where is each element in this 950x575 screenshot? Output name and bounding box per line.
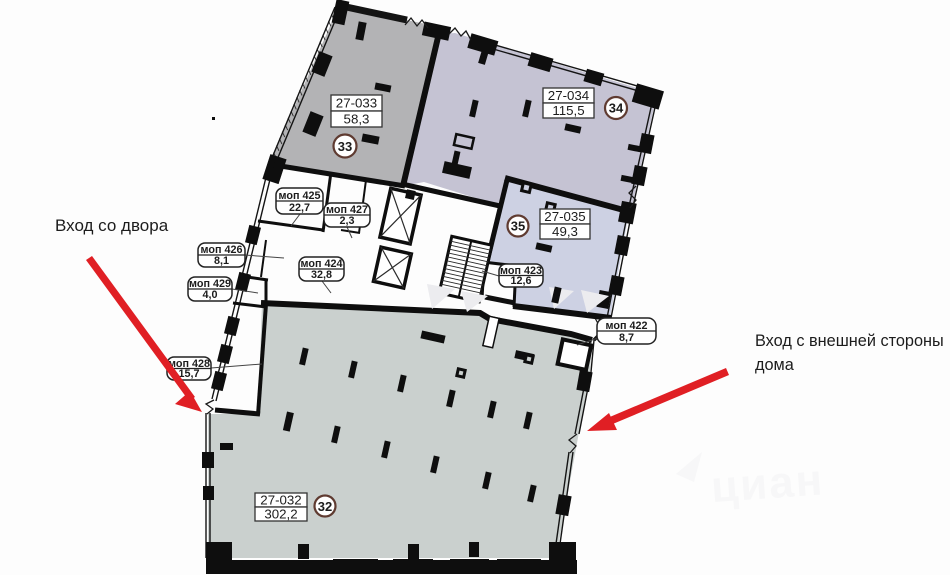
svg-text:115,5: 115,5 [552,103,584,118]
svg-text:12,6: 12,6 [510,275,531,287]
svg-text:32: 32 [318,499,332,514]
svg-text:27-035: 27-035 [544,209,585,224]
svg-text:27-032: 27-032 [260,493,301,508]
svg-text:33: 33 [338,139,352,154]
svg-text:2,3: 2,3 [339,215,354,227]
svg-text:15,7: 15,7 [178,368,199,380]
svg-text:58,3: 58,3 [344,112,370,127]
svg-text:Вход с внешней стороны: Вход с внешней стороны [755,332,944,350]
svg-text:35: 35 [511,219,525,234]
svg-text:дома: дома [755,356,795,374]
svg-text:302,2: 302,2 [264,507,297,522]
svg-text:8,1: 8,1 [214,255,229,267]
svg-text:27-034: 27-034 [548,88,589,103]
svg-text:Вход со двора: Вход со двора [55,216,169,235]
svg-text:моп 425: моп 425 [279,190,321,202]
svg-text:32,8: 32,8 [311,269,332,281]
svg-text:34: 34 [609,101,624,116]
svg-text:циан: циан [709,455,825,512]
svg-text:22,7: 22,7 [289,202,310,214]
svg-text:8,7: 8,7 [619,332,634,344]
svg-text:моп 422: моп 422 [606,320,648,332]
svg-text:4,0: 4,0 [202,289,217,301]
svg-text:27-033: 27-033 [336,96,377,111]
svg-text:49,3: 49,3 [552,224,578,239]
